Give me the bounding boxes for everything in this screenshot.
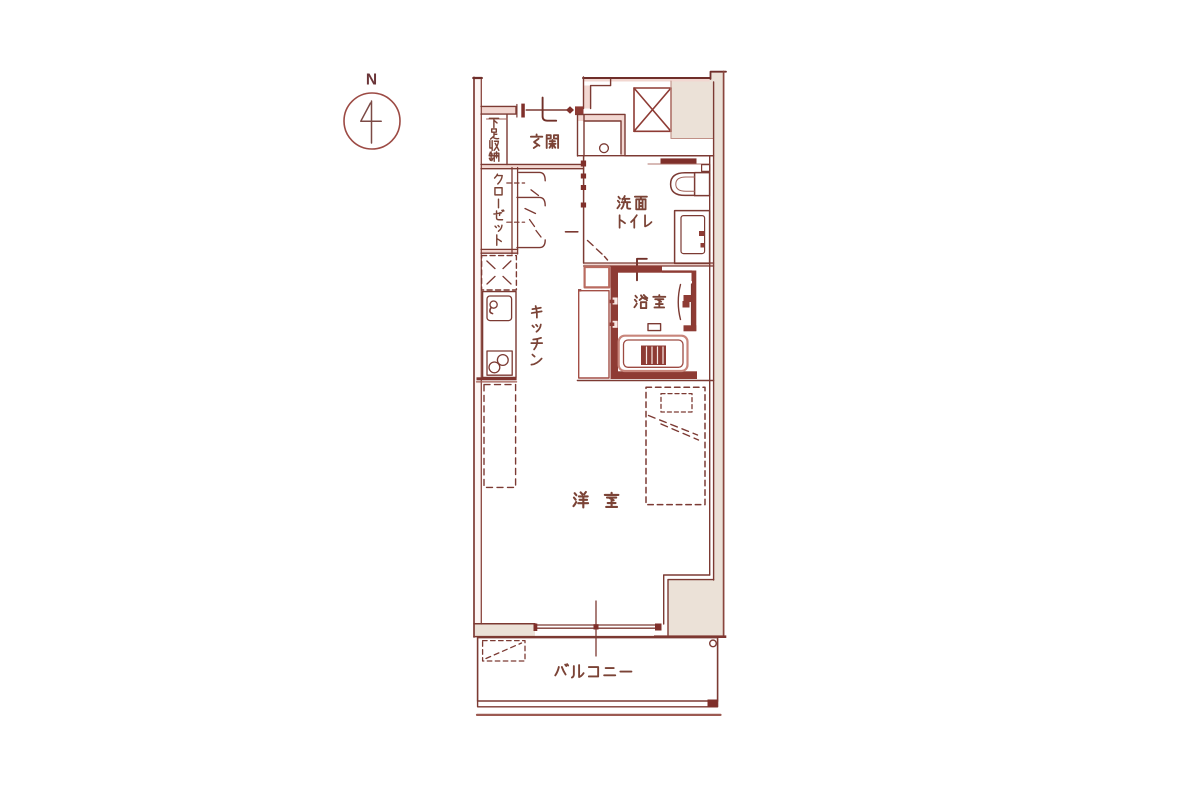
svg-text:N: N: [366, 72, 377, 89]
